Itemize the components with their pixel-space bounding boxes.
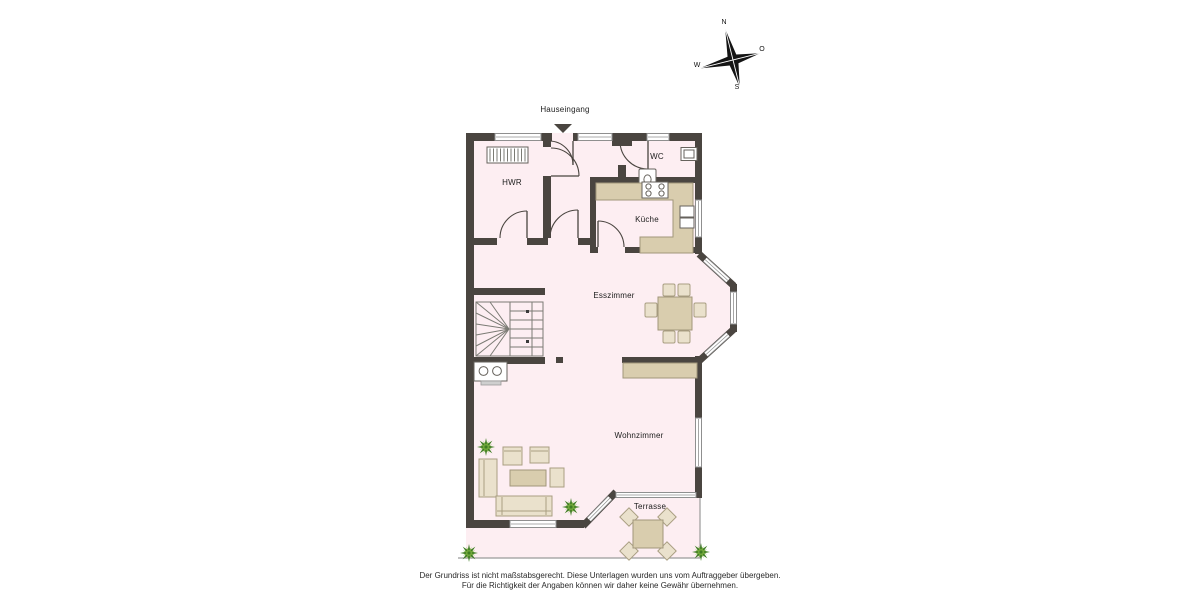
sofa (496, 496, 552, 516)
compass-south-label: S (735, 84, 740, 91)
terrace-table (633, 520, 663, 548)
disclaimer-line-1: Der Grundriss ist nicht maßstabsgerecht.… (0, 571, 1200, 581)
armchair (503, 447, 522, 465)
entrance-arrow-icon (554, 124, 572, 133)
dining-chair (663, 284, 675, 296)
chimney-pier (612, 133, 632, 146)
dining-chair (645, 303, 657, 317)
compass-east-label: O (759, 46, 764, 53)
compass-rose-icon (691, 22, 767, 95)
compass-north-label: N (721, 19, 726, 26)
washbasin-icon (681, 148, 697, 161)
dining-chair (663, 331, 675, 343)
room-label-hwr: HWR (502, 178, 522, 187)
disclaimer-text: Der Grundriss ist nicht maßstabsgerecht.… (0, 571, 1200, 591)
dining-table (658, 297, 692, 330)
room-label-wc: WC (650, 152, 664, 161)
kitchen-sink-icon (680, 206, 694, 228)
floor-plan-page: Hauseingang HWR WC Küche Esszimmer Wohnz… (0, 0, 1200, 600)
radiator-icon (487, 147, 528, 163)
sideboard (623, 363, 697, 378)
dining-chair (678, 284, 690, 296)
room-label-kueche: Küche (635, 215, 659, 224)
armchair (530, 447, 549, 463)
room-label-esszimmer: Esszimmer (593, 291, 634, 300)
dining-chair (694, 303, 706, 317)
plant-icon (460, 544, 478, 562)
side-table (550, 468, 564, 487)
coffee-table (510, 470, 546, 486)
room-label-wohnzimmer: Wohnzimmer (615, 431, 664, 440)
dining-chair (678, 331, 690, 343)
stove-icon (642, 182, 668, 198)
wc-wall-stub (618, 165, 626, 177)
plant-icon (477, 438, 495, 456)
entrance-label: Hauseingang (540, 105, 589, 114)
loveseat (479, 459, 497, 497)
plant-icon (562, 498, 580, 516)
floor-plan-drawing (0, 0, 1200, 600)
room-label-terrasse: Terrasse (634, 502, 666, 511)
plant-icon (692, 543, 710, 561)
compass-west-label: W (694, 62, 701, 69)
disclaimer-line-2: Für die Richtigkeit der Angaben können w… (0, 581, 1200, 591)
